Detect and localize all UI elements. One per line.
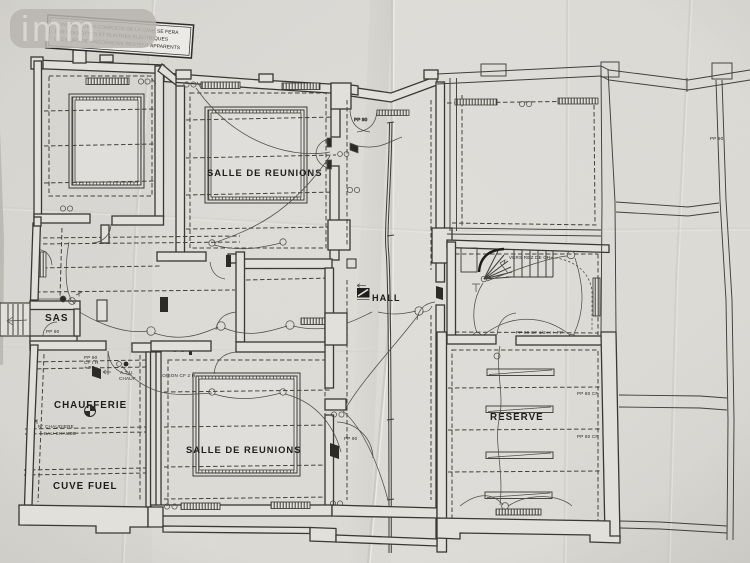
svg-text:PP 90: PP 90 [344,436,358,441]
svg-text:RESERVE: RESERVE [490,412,544,423]
svg-text:PP 80 CF 1/2 H + PP: PP 80 CF 1/2 H + PP [516,330,563,335]
svg-text:A.T.U.: A.T.U. [120,370,134,375]
svg-text:SALLE DE REUNIONS: SALLE DE REUNIONS [207,167,322,178]
svg-text:PP 80 CF: PP 80 CF [577,434,598,439]
svg-text:PP 90: PP 90 [710,136,724,141]
svg-text:HALL: HALL [372,293,401,303]
svg-text:imm: imm [21,8,98,49]
svg-text:VERS REZ DE CH: VERS REZ DE CH [509,255,550,260]
svg-text:SALLE DE REUNIONS: SALLE DE REUNIONS [186,444,301,455]
svg-text:CLOISON CF 2 H: CLOISON CF 2 H [156,373,195,378]
svg-text:PP 80 CF: PP 80 CF [577,391,598,396]
svg-text:PP 90: PP 90 [354,117,368,122]
svg-text:PP 90: PP 90 [46,329,60,334]
svg-text:CUVE FUEL: CUVE FUEL [53,481,118,492]
svg-text:+ PF: + PF [84,365,95,370]
